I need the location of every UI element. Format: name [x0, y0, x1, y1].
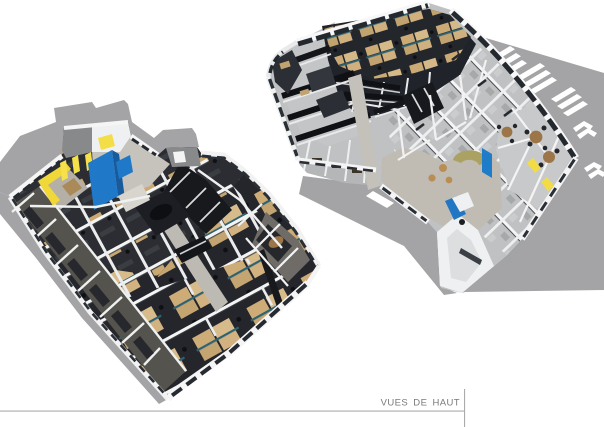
svg-text:VUES DE HAUT: VUES DE HAUT: [381, 398, 460, 409]
